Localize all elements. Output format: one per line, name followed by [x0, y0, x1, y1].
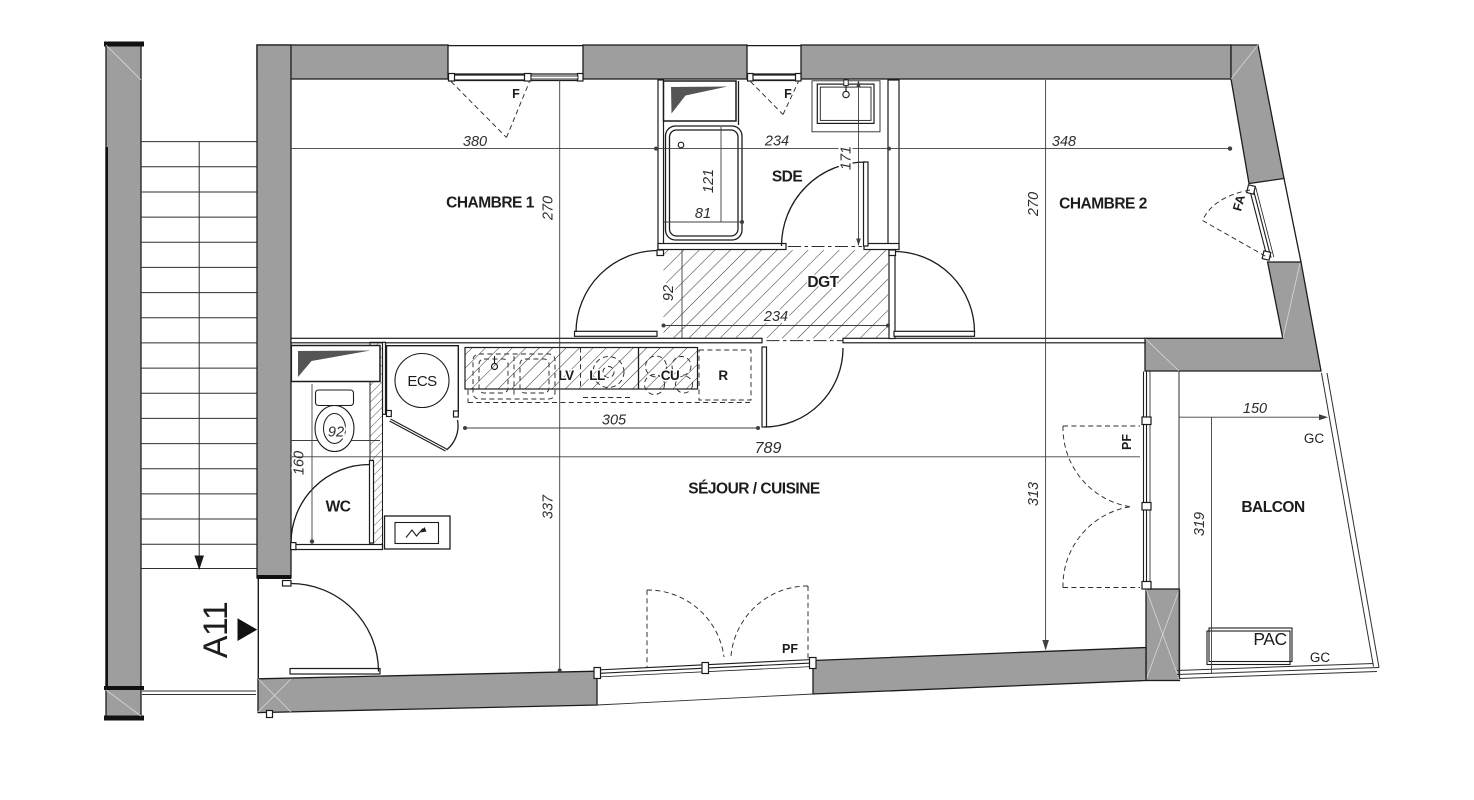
svg-text:81: 81 — [695, 206, 711, 222]
svg-text:ECS: ECS — [407, 373, 437, 390]
svg-text:150: 150 — [1243, 401, 1267, 417]
svg-text:CHAMBRE 2: CHAMBRE 2 — [1059, 196, 1147, 213]
svg-text:CHAMBRE 1: CHAMBRE 1 — [446, 195, 535, 212]
svg-text:171: 171 — [839, 146, 855, 170]
svg-text:PAC: PAC — [1253, 629, 1286, 649]
svg-text:313: 313 — [1026, 482, 1042, 506]
svg-text:380: 380 — [463, 134, 487, 150]
svg-text:234: 234 — [763, 309, 788, 325]
svg-text:A11: A11 — [197, 602, 235, 658]
svg-text:789: 789 — [755, 440, 782, 457]
svg-text:BALCON: BALCON — [1241, 499, 1305, 516]
svg-text:F: F — [784, 87, 792, 101]
svg-text:R: R — [718, 368, 728, 383]
svg-text:270: 270 — [541, 196, 557, 221]
svg-text:PF: PF — [782, 642, 798, 656]
svg-text:LL: LL — [589, 368, 605, 383]
svg-text:DGT: DGT — [807, 274, 839, 291]
svg-text:SÉJOUR / CUISINE: SÉJOUR / CUISINE — [688, 481, 820, 498]
svg-text:160: 160 — [292, 451, 308, 475]
svg-text:CU: CU — [661, 368, 680, 383]
svg-text:PF: PF — [1120, 434, 1134, 450]
svg-text:121: 121 — [701, 169, 717, 193]
svg-text:337: 337 — [541, 494, 557, 519]
svg-text:GC: GC — [1310, 650, 1331, 665]
svg-text:F: F — [512, 87, 520, 101]
svg-text:WC: WC — [326, 499, 351, 516]
svg-text:92: 92 — [328, 425, 344, 441]
svg-text:348: 348 — [1052, 134, 1076, 150]
svg-text:92: 92 — [661, 285, 677, 301]
svg-text:270: 270 — [1026, 192, 1042, 217]
svg-text:GC: GC — [1304, 431, 1325, 446]
svg-text:SDE: SDE — [772, 169, 803, 186]
svg-text:234: 234 — [764, 134, 789, 150]
svg-text:LV: LV — [558, 368, 574, 383]
svg-text:305: 305 — [602, 413, 627, 429]
svg-text:319: 319 — [1192, 512, 1208, 536]
